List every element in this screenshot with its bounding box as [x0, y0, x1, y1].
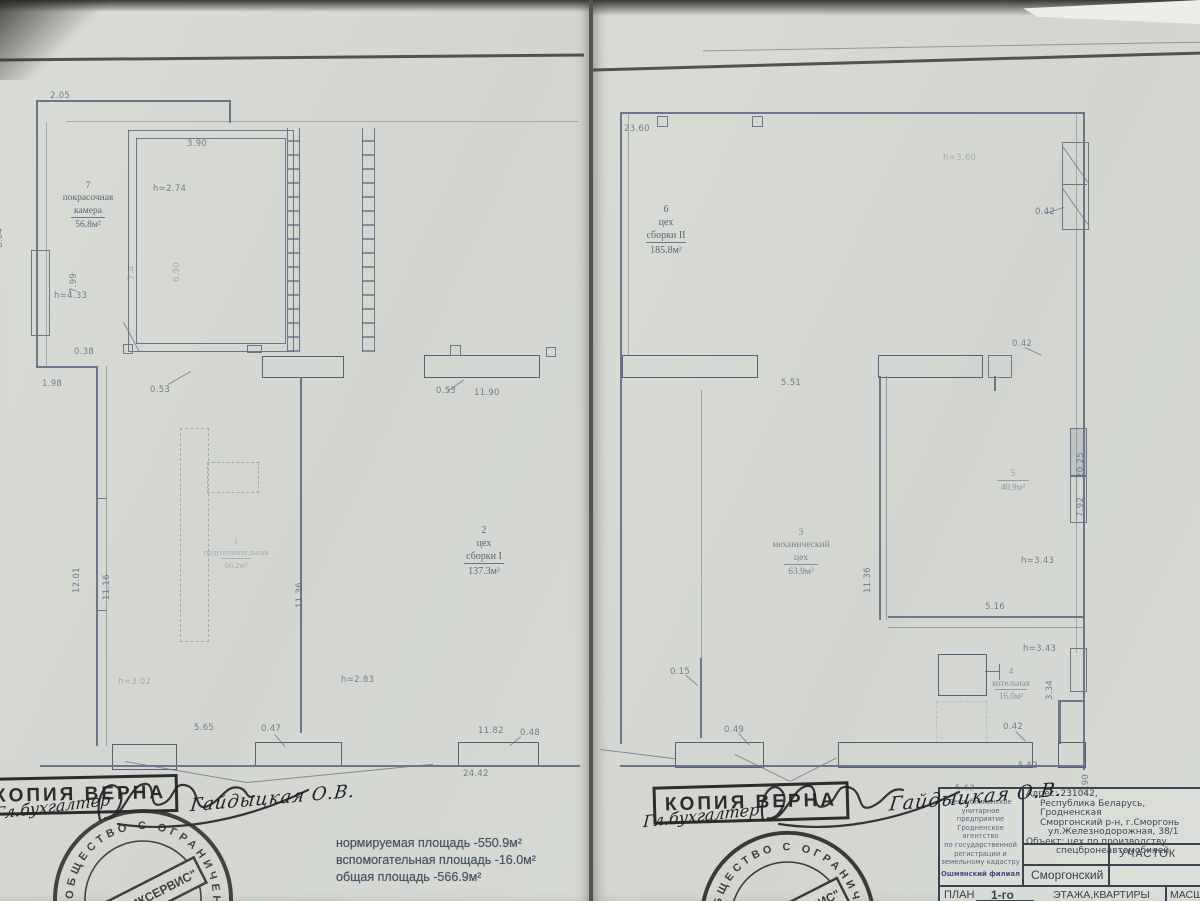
drawing-segment [1062, 184, 1087, 185]
dim-11-36: 11.36 [295, 582, 305, 608]
drawing-segment [36, 366, 98, 368]
dim-h3-43-b: h=3.43 [1023, 644, 1056, 654]
window [1070, 648, 1087, 692]
drawing-segment: камера [50, 205, 126, 217]
drawing-segment: 4 [979, 666, 1043, 678]
drawing-segment [657, 116, 668, 127]
dim-0-47: 0.47 [261, 724, 281, 734]
dim-0-42-bottom: 0.42 [1003, 722, 1023, 732]
area-summary: нормируемая площадь -550.9м² вспомогател… [336, 835, 536, 886]
drawing-segment: сборки I [446, 550, 522, 563]
drawing-segment: покрасочная [50, 192, 126, 204]
ramp-outline [207, 462, 259, 493]
wall-bench [424, 355, 540, 378]
dim-1-98: 1.98 [42, 379, 62, 389]
dim-0-42-top: 0.42 [1035, 207, 1055, 217]
drawing-segment [168, 371, 191, 385]
drawing-segment [1058, 700, 1084, 702]
paint-booth-inner [136, 138, 286, 344]
drawing-segment: цех [446, 537, 522, 550]
right-page: 23.60 h=3.60 0.42 0.42 5.51 0.15 11.36 2… [593, 0, 1200, 901]
drawing-segment [300, 377, 302, 733]
window [31, 250, 50, 336]
drawing-segment: 40.9м² [997, 480, 1029, 494]
drawing-segment [879, 376, 881, 620]
drawing-segment: 6 [623, 203, 709, 216]
drawing-segment [458, 742, 539, 766]
section-value: Сморгонский [1031, 868, 1103, 882]
plan-value: 1-го [991, 888, 1014, 901]
auxiliary-area: вспомогательная площадь -16.0м² [336, 852, 536, 869]
dim-23-60: 23.60 [624, 124, 650, 134]
wall-bench [878, 355, 983, 378]
drawing-segment [701, 390, 702, 662]
room-label-prep: 1 подготовительная 66.2м² [198, 536, 274, 571]
drawing-segment [938, 885, 1200, 887]
drawing-segment: 185.8м² [646, 242, 686, 257]
practikservis-seal: ОБЩЕСТВО С ОГРАНИЧЕННОЙ ОТВЕТСТВЕННОСТЬЮ… [695, 826, 880, 901]
drawing-segment: Ошмянский филиал [941, 870, 1020, 879]
dim-3-90: 3.90 [187, 139, 207, 149]
drawing-segment: 63.9м² [784, 564, 818, 578]
drawing-segment: по государственной [941, 841, 1020, 850]
drawing-segment [700, 658, 702, 738]
drawing-segment [0, 0, 110, 80]
drawing-segment [247, 345, 262, 353]
drawing-segment [888, 616, 1085, 618]
drawing-segment: цех [751, 552, 851, 564]
drawing-segment: регистрации и [941, 850, 1020, 859]
floor-label: ЭТАЖА,КВАРТИРЫ [1053, 889, 1150, 901]
page-border-line [593, 51, 1200, 71]
dim-7-99: 7.99 [69, 273, 79, 293]
drawing-segment [546, 347, 556, 357]
drawing-segment [1015, 731, 1026, 742]
room-label-5: 5 40.9м² [981, 468, 1045, 493]
dim-8-64: 8.64 [0, 228, 5, 248]
dim-2-05: 2.05 [50, 91, 70, 101]
drawing-segment [106, 366, 107, 746]
dim-0-48: 0.48 [520, 728, 540, 738]
dim-0-49: 0.49 [724, 725, 744, 735]
drawing-segment [255, 742, 342, 767]
scanned-floorplan-photo: { "stamps": { "copy_stamp": "КОПИЯ ВЕРНА… [0, 0, 1200, 901]
dim-11-82: 11.82 [478, 726, 504, 736]
room-label-mechanical: 3 механический цех 63.9м² [751, 527, 851, 578]
drawing-segment [994, 376, 996, 391]
dim-h2-83: h=2.83 [341, 675, 374, 685]
drawing-segment [886, 376, 887, 620]
drawing-segment: 66.2м² [221, 558, 252, 571]
dim-11-36: 11.36 [863, 567, 873, 593]
dim-7-92: 7.92 [1076, 497, 1086, 517]
drawing-segment: 2 [446, 524, 522, 537]
drawing-segment [123, 344, 133, 354]
drawing-segment [1165, 885, 1167, 901]
plan-label: ПЛАН [944, 889, 974, 901]
dim-0-38: 0.38 [74, 347, 94, 357]
room-label-boiler: 4 котельная 16.0м² [979, 666, 1043, 703]
dim-h3-02: h=3.02 [118, 677, 151, 687]
drawing-segment: земельному кадастру [941, 858, 1020, 867]
equipment-outline [936, 701, 987, 743]
drawing-segment [620, 765, 1085, 767]
dim-6-90: 6.90 [172, 262, 182, 282]
dim-5-65: 5.65 [194, 723, 214, 733]
drawing-segment: 1 [198, 536, 274, 547]
hatched-wall [362, 128, 375, 352]
dim-h2-74: h=2.74 [153, 184, 186, 194]
drawing-segment [1022, 864, 1200, 866]
drawing-segment [450, 345, 461, 356]
scale-label: МАСШТАБ [1170, 889, 1200, 901]
drawing-segment [888, 627, 1085, 628]
dim-24-42: 24.42 [463, 769, 489, 779]
normed-area: нормируемая площадь -550.9м² [336, 835, 536, 852]
dim-h4-33: h=4.33 [54, 291, 87, 301]
dim-11-16: 11.16 [102, 574, 112, 600]
drawing-segment [96, 610, 107, 611]
drawing-segment [703, 42, 1200, 52]
dim-5-62: 5.62 [1018, 761, 1038, 771]
drawing-segment [620, 112, 1085, 114]
drawing-segment: 3 [751, 527, 851, 539]
dim-5-16: 5.16 [985, 602, 1005, 612]
drawing-segment [762, 786, 903, 820]
drawing-segment: сборки II [623, 229, 709, 242]
drawing-segment: котельная [979, 678, 1043, 690]
drawing-segment: подготовительная [198, 547, 274, 558]
drawing-segment [1058, 700, 1061, 744]
dim-3-34: 3.34 [1045, 680, 1055, 700]
dim-11-90: 11.90 [474, 388, 500, 398]
dim-7-4: 7.4 [127, 266, 137, 280]
ramp-outline [180, 428, 209, 642]
total-area: общая площадь -566.9м² [336, 869, 536, 886]
left-page: 2.05 8.64 7.99 h=4.33 0.38 1.98 0.53 3.9… [0, 0, 589, 901]
drawing-segment: 7 [50, 180, 126, 192]
drawing-segment: 5 [981, 468, 1045, 480]
dim-h3-60: h=3.60 [943, 153, 976, 163]
wall-bench [262, 356, 344, 378]
room-label-assembly1: 2 цех сборки I 137.3м² [446, 524, 522, 578]
dim-20-25: 20.25 [1076, 452, 1086, 478]
drawing-segment [96, 366, 98, 746]
drawing-segment [229, 100, 231, 123]
dim-0-53b: 0.53 [436, 386, 456, 396]
room-label-paint-chamber: 7 покрасочная камера 56.8м² [50, 180, 126, 231]
hatched-wall [287, 128, 300, 352]
room-label-assembly2: 6 цех сборки II 185.8м² [623, 203, 709, 257]
drawing-segment [96, 498, 107, 499]
drawing-segment: цех [623, 216, 709, 229]
drawing-segment [752, 116, 763, 127]
drawing-segment: 137.3м² [464, 563, 504, 578]
drawing-segment [620, 112, 622, 744]
dim-5-51: 5.51 [781, 378, 801, 388]
drawing-segment [988, 355, 1012, 378]
wall-bench [622, 355, 758, 378]
drawing-segment: 16.0м² [995, 689, 1027, 703]
dim-0-53: 0.53 [150, 385, 170, 395]
section-label: УЧАСТОК [1119, 848, 1176, 860]
drawing-segment [600, 749, 676, 759]
drawing-segment: механический [751, 539, 851, 551]
drawing-segment: 56.8м² [71, 217, 105, 231]
drawing-segment [66, 121, 578, 122]
dim-h3-43-a: h=3.43 [1021, 556, 1054, 566]
drawing-segment: "ПРАКТИКСЕРВИС" [80, 857, 207, 901]
drawing-segment: Республика Беларусь, Гродненская [1026, 800, 1200, 819]
dim-0-42-mid: 0.42 [1012, 339, 1032, 349]
dim-0-15: 0.15 [670, 667, 690, 677]
dim-12-01: 12.01 [72, 567, 82, 593]
practikservis-seal: ОБЩЕСТВО С ОГРАНИЧЕННОЙ ОТВЕТСТВЕННОСТЬЮ… [48, 804, 238, 901]
chimney [1062, 142, 1089, 230]
